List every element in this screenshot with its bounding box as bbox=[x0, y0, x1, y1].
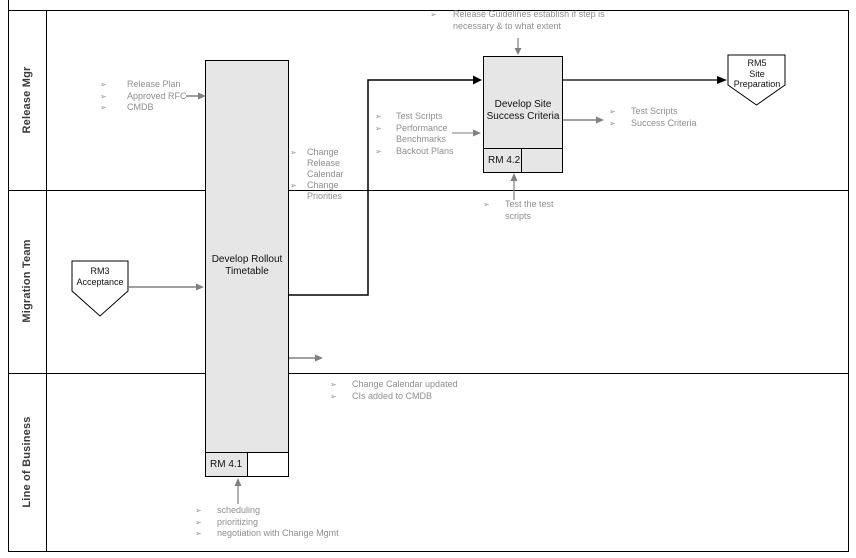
milestone-label-rm3: RM3 Acceptance bbox=[72, 266, 128, 287]
bullet-arrow-icon: ➢ bbox=[430, 9, 453, 21]
lane-divider-migration-lob bbox=[8, 373, 848, 374]
annotation-item: ➢Test the test scripts bbox=[483, 199, 565, 222]
annotation-line-of-business-outputs: ➢Change Calendar updated➢CIs added to CM… bbox=[330, 379, 490, 402]
lane-label-migration-team: Migration Team bbox=[21, 239, 33, 322]
bullet-arrow-icon: ➢ bbox=[290, 180, 307, 192]
process-tag-empty-cell bbox=[248, 453, 288, 476]
annotation-item: ➢Change Release Calendar bbox=[290, 147, 360, 180]
swimlane-diagram: Release Mgr Migration Team Line of Busin… bbox=[0, 0, 856, 558]
bullet-arrow-icon: ➢ bbox=[330, 391, 352, 403]
lane-label-release-mgr: Release Mgr bbox=[21, 66, 33, 133]
annotation-rollout-inputs: ➢Release Plan➢Approved RFC➢CMDB bbox=[100, 79, 215, 114]
annotation-release-guidelines: ➢Release Guidelines establish if step is… bbox=[430, 9, 635, 32]
annotation-item: ➢negotiation with Change Mgmt bbox=[195, 528, 355, 540]
lane-label-column-divider bbox=[46, 10, 47, 551]
annotation-success-criteria-outputs: ➢Test Scripts➢Success Criteria bbox=[609, 106, 719, 129]
annotation-item: ➢Approved RFC bbox=[100, 91, 215, 103]
bullet-arrow-icon: ➢ bbox=[100, 91, 127, 103]
border-stub-line bbox=[8, 0, 9, 10]
annotation-item: ➢scheduling bbox=[195, 505, 355, 517]
lane-divider-release-migration bbox=[8, 190, 848, 191]
annotation-success-criteria-inputs: ➢Test Scripts➢Performance Benchmarks➢Bac… bbox=[375, 111, 485, 157]
process-title: Develop Site Success Criteria bbox=[484, 99, 562, 123]
annotation-item: ➢Performance Benchmarks bbox=[375, 123, 485, 146]
process-box-develop-site-success-criteria: Develop Site Success Criteria RM 4.2 bbox=[483, 56, 563, 173]
annotation-item: ➢Test Scripts bbox=[375, 111, 485, 123]
annotation-change-calendar-priorities: ➢Change Release Calendar➢Change Prioriti… bbox=[290, 147, 360, 202]
annotation-item: ➢Test Scripts bbox=[609, 106, 719, 118]
bullet-arrow-icon: ➢ bbox=[100, 79, 127, 91]
milestone-label-rm5: RM5 Site Preparation bbox=[726, 58, 788, 90]
process-tag-strip: RM 4.1 bbox=[206, 452, 288, 476]
process-tag-strip: RM 4.2 bbox=[484, 148, 562, 172]
annotation-item: ➢Release Plan bbox=[100, 79, 215, 91]
bullet-arrow-icon: ➢ bbox=[195, 505, 217, 517]
annotation-item: ➢Release Guidelines establish if step is… bbox=[430, 9, 635, 32]
bullet-arrow-icon: ➢ bbox=[195, 517, 217, 529]
process-title: Develop Rollout Timetable bbox=[206, 254, 288, 278]
bullet-arrow-icon: ➢ bbox=[375, 146, 396, 158]
annotation-rollout-activities: ➢scheduling➢prioritizing➢negotiation wit… bbox=[195, 505, 355, 540]
annotation-item: ➢Change Calendar updated bbox=[330, 379, 490, 391]
process-box-develop-rollout-timetable: Develop Rollout Timetable RM 4.1 bbox=[205, 60, 289, 477]
lane-label-line-of-business: Line of Business bbox=[21, 416, 33, 507]
annotation-item: ➢Backout Plans bbox=[375, 146, 485, 158]
bullet-arrow-icon: ➢ bbox=[483, 199, 505, 211]
annotation-item: ➢CIs added to CMDB bbox=[330, 391, 490, 403]
process-tag-label: RM 4.2 bbox=[484, 149, 522, 172]
bullet-arrow-icon: ➢ bbox=[609, 106, 631, 118]
bullet-arrow-icon: ➢ bbox=[375, 111, 396, 123]
bullet-arrow-icon: ➢ bbox=[100, 102, 127, 114]
annotation-test-the-test-scripts: ➢Test the test scripts bbox=[483, 199, 565, 222]
process-tag-empty-cell bbox=[522, 149, 562, 172]
process-tag-label: RM 4.1 bbox=[206, 453, 248, 476]
annotation-item: ➢Success Criteria bbox=[609, 118, 719, 130]
annotation-item: ➢Change Priorities bbox=[290, 180, 360, 202]
bullet-arrow-icon: ➢ bbox=[290, 147, 307, 159]
annotation-item: ➢CMDB bbox=[100, 102, 215, 114]
bullet-arrow-icon: ➢ bbox=[375, 123, 396, 135]
bullet-arrow-icon: ➢ bbox=[609, 118, 631, 130]
bullet-arrow-icon: ➢ bbox=[330, 379, 352, 391]
bullet-arrow-icon: ➢ bbox=[195, 528, 217, 540]
annotation-item: ➢prioritizing bbox=[195, 517, 355, 529]
